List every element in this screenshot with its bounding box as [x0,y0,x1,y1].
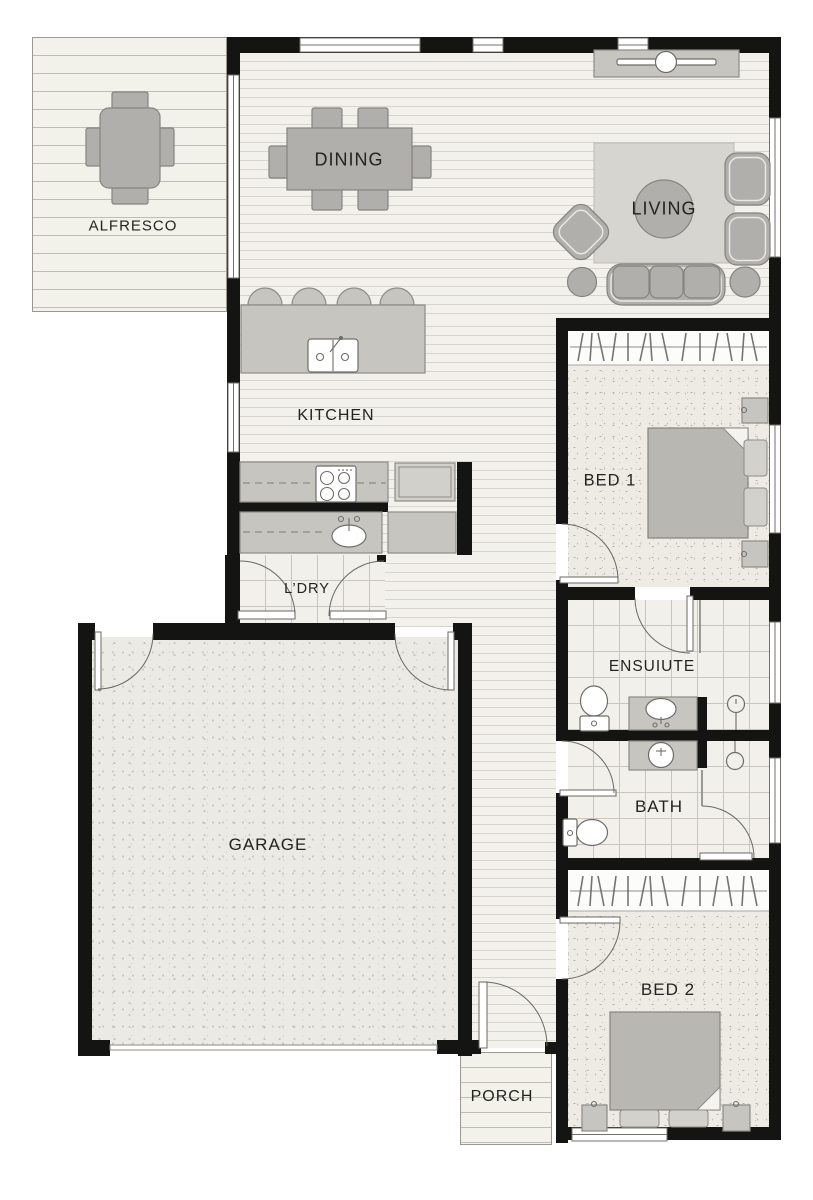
window [300,38,420,52]
tv-unit [594,50,739,77]
bed2-door [560,917,620,979]
garage-internal-door [395,632,454,690]
floor-plan: ALFRESCO DINING LIVING KITCHEN L’DRY BED… [0,0,813,1200]
shower-icon [728,696,745,731]
kitchen-island [241,288,425,373]
room-label-kitchen: KITCHEN [297,407,374,425]
window [770,758,781,843]
bed1-bed [648,428,767,538]
window [770,425,781,533]
armchair [725,153,770,205]
room-label-porch: PORCH [471,1088,534,1106]
cooktop-icon [316,466,356,502]
bed1-robe [568,333,769,365]
side-table [568,268,597,297]
armchair [725,213,770,265]
bed2-robe [568,876,769,911]
ensuite-vanity [629,697,697,730]
front-door [479,982,547,1048]
window [228,383,239,452]
bed1-door [560,524,618,583]
bed2-bed [610,1012,720,1127]
bedside-table [742,398,769,423]
laundry-door-right [329,561,386,619]
doors [95,524,693,1048]
window [473,38,503,52]
room-label-dining: DINING [315,150,384,171]
room-label-bath: BATH [635,797,683,817]
garage-side-door [95,632,153,690]
plan-graphics [0,0,813,1200]
fridge-space [395,463,455,501]
room-label-bed2: BED 2 [641,980,695,1000]
kitchen-sink-icon [308,336,358,372]
room-label-living: LIVING [631,199,696,220]
toilet-icon [580,686,609,731]
ensuite-door [635,596,693,653]
alfresco-table-setting [86,92,174,204]
bedside-table [582,1102,607,1132]
bedside-table [723,1102,750,1132]
garage-roller-door [110,1045,437,1050]
room-label-laundry: L’DRY [284,581,330,597]
sliding-door-window [228,75,239,278]
room-label-bed1: BED 1 [584,472,637,491]
room-label-garage: GARAGE [229,835,308,855]
bath-door [560,741,616,796]
bath-vanity [629,741,697,770]
window [770,118,781,257]
window [770,622,781,703]
side-table [730,267,760,297]
shower-icon [727,741,744,770]
bedside-table [742,541,769,567]
toilet-icon [563,819,608,846]
laundry-bench [240,512,456,553]
kitchen-bench [240,462,455,502]
room-label-ensuite: ENSUIUTE [609,658,695,676]
sofa [607,264,725,305]
room-label-alfresco: ALFRESCO [89,218,178,235]
shower-screen-door [700,770,754,860]
